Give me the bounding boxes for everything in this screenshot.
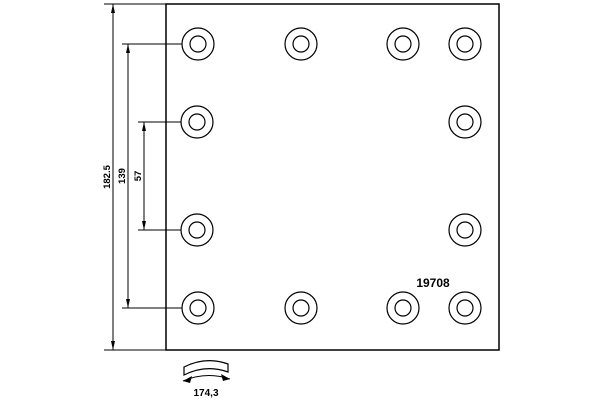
dim-label-hole-span: 139	[117, 168, 128, 184]
rivet-hole-inner	[293, 300, 309, 316]
rivet-hole-inner	[395, 36, 411, 52]
arc-dimension-label: 174,3	[193, 388, 218, 399]
rivet-hole-outer	[449, 28, 481, 60]
arrow-down-icon	[126, 299, 130, 308]
rivet-hole-inner	[189, 114, 205, 130]
rivet-hole-outer	[449, 292, 481, 324]
arrow-up-icon	[111, 4, 115, 13]
rivet-hole-outer	[182, 28, 214, 60]
rivet-hole-inner	[457, 36, 473, 52]
dim-label-overall-width: 182.5	[102, 164, 113, 188]
rivet-hole-outer	[387, 292, 419, 324]
dim-hole-span: 139	[117, 44, 130, 308]
arrow-left-icon	[183, 376, 192, 383]
rivet-hole-inner	[293, 36, 309, 52]
rivet-hole-inner	[190, 36, 206, 52]
arrow-down-icon	[142, 221, 146, 230]
arc-section-outline	[184, 361, 228, 375]
lining-outline	[166, 4, 499, 350]
arrow-right-icon	[221, 374, 230, 381]
dim-label-hole-pitch: 57	[133, 171, 144, 182]
dim-hole-pitch: 57	[133, 122, 146, 230]
rivet-hole-outer	[449, 106, 481, 138]
arrow-down-icon	[111, 341, 115, 350]
part-number-label: 19708	[416, 276, 450, 290]
technical-drawing-page: 182.5 139 57 19708 174,3	[0, 0, 600, 400]
rivet-hole-outer	[387, 28, 419, 60]
rivet-hole-inner	[190, 300, 206, 316]
arrow-up-icon	[126, 44, 130, 53]
arrow-up-icon	[142, 122, 146, 131]
rivet-hole-inner	[395, 300, 411, 316]
rivet-hole-inner	[189, 222, 205, 238]
rivet-hole-outer	[449, 214, 481, 246]
rivet-hole-outer	[285, 28, 317, 60]
dim-overall-width: 182.5	[102, 4, 115, 350]
rivet-hole-outer	[181, 106, 213, 138]
rivet-hole-outer	[182, 292, 214, 324]
rivet-hole-inner	[457, 114, 473, 130]
brake-lining-drawing: 182.5 139 57 19708 174,3	[0, 0, 600, 400]
rivet-hole-outer	[181, 214, 213, 246]
arc-section-view: 174,3	[183, 361, 230, 399]
rivet-hole-outer	[285, 292, 317, 324]
rivet-hole-inner	[457, 222, 473, 238]
rivet-hole-inner	[457, 300, 473, 316]
